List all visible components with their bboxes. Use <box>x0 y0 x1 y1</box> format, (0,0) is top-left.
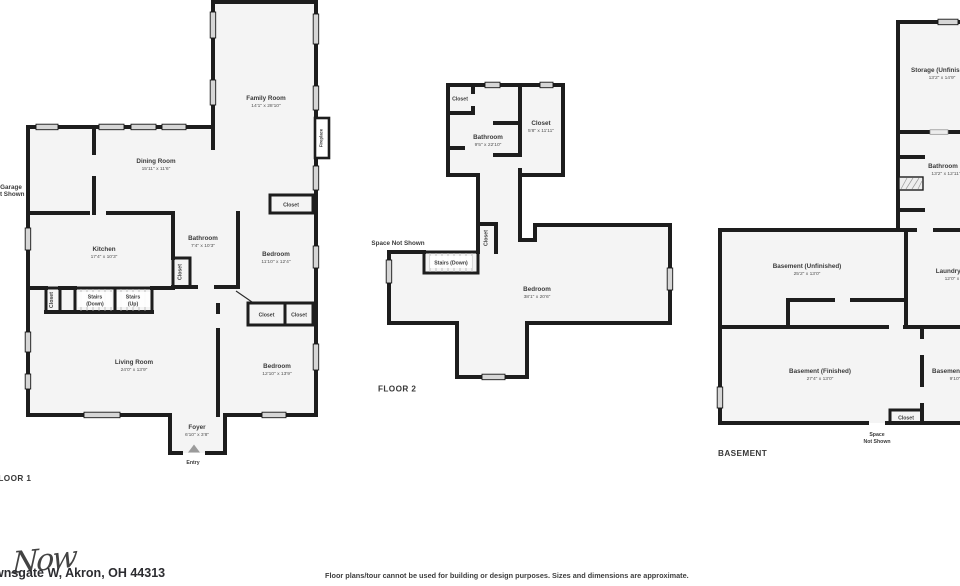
svg-text:24'0" x 13'9": 24'0" x 13'9" <box>121 367 148 373</box>
svg-text:15'11" x 11'6": 15'11" x 11'6" <box>142 166 171 172</box>
svg-text:12'0" x 13'0": 12'0" x 13'0" <box>945 276 960 282</box>
floor1-plan: Stairs (Down) Stairs (Up) Fireplace Fami… <box>0 2 329 483</box>
bathroom1-label: Bathroom <box>188 235 218 242</box>
floorplan-canvas: Stairs (Down) Stairs (Up) Fireplace Fami… <box>0 0 960 586</box>
svg-text:14'1" x 28'10": 14'1" x 28'10" <box>251 103 281 109</box>
bedroom-floor2-label: Bedroom <box>523 286 551 293</box>
bathroom2-label: Bathroom <box>473 134 503 141</box>
basement-top-footprint <box>898 22 960 230</box>
garage-note: Garage <box>0 184 22 191</box>
bedroom2-label: Bedroom <box>263 363 291 370</box>
svg-text:(Down): (Down) <box>86 302 104 308</box>
svg-text:(Up): (Up) <box>128 302 139 308</box>
basement-finished-label: Basement (Finished) <box>789 368 851 375</box>
basement-unfinished-label: Basement (Unfinished) <box>773 263 842 270</box>
svg-text:Not Shown: Not Shown <box>863 439 890 445</box>
svg-text:38'1" x 20'6": 38'1" x 20'6" <box>524 294 551 300</box>
family-room-label: Family Room <box>246 95 286 102</box>
basement-bathroom-label: Bathroom <box>928 163 958 170</box>
kitchen-label: Kitchen <box>92 246 115 253</box>
svg-text:11'10" x 12'4": 11'10" x 12'4" <box>261 259 290 265</box>
basement-title: BASEMENT <box>718 449 767 458</box>
closet-label: Closet <box>49 292 55 308</box>
open-door-marker <box>930 130 948 135</box>
closet-label: Closet <box>259 313 275 319</box>
floor1-title: FLOOR 1 <box>0 474 31 483</box>
stairs-down-label: Stairs (Down) <box>434 261 468 267</box>
floor2-title: FLOOR 2 <box>378 385 416 394</box>
svg-text:6'10" x 3'8": 6'10" x 3'8" <box>185 432 209 438</box>
svg-text:9'5" x 22'10": 9'5" x 22'10" <box>475 142 502 148</box>
closet-label: Closet <box>484 230 490 246</box>
disclaimer-text: Floor plans/tour cannot be used for buil… <box>325 571 689 580</box>
svg-text:7'4" x 10'3": 7'4" x 10'3" <box>191 243 215 249</box>
fireplace-label: Fireplace <box>319 128 324 147</box>
closet-label: Closet <box>178 264 184 280</box>
living-room-label: Living Room <box>115 359 154 366</box>
stairs-down-label: Stairs <box>88 295 103 301</box>
closet-label: Closet <box>452 97 468 103</box>
svg-text:25'2" x 13'0": 25'2" x 13'0" <box>794 271 821 277</box>
svg-text:Not Shown: Not Shown <box>0 191 25 198</box>
floor2-plan: Stairs (Down) Closet Bathroom 9'5" x 22'… <box>371 82 672 393</box>
space-not-shown-note: Space Not Shown <box>371 240 424 247</box>
svg-text:12'10" x 13'9": 12'10" x 13'9" <box>262 371 292 377</box>
storage-label: Storage (Unfinished) <box>911 67 960 74</box>
stairs-up-label: Stairs <box>126 295 141 301</box>
foyer-label: Foyer <box>188 424 206 431</box>
basement-plan: Storage (Unfinished) 13'2" x 14'9" Bathr… <box>717 19 960 458</box>
closet-label: Closet <box>898 416 914 422</box>
basement-small-label: Basement (Finished) <box>932 368 960 375</box>
hatched-fixture <box>899 177 923 190</box>
svg-text:13'2" x 14'9": 13'2" x 14'9" <box>929 75 956 81</box>
laundry-room-label: Laundry Room <box>936 268 960 275</box>
svg-text:9'10" x 12'0": 9'10" x 12'0" <box>950 376 960 382</box>
svg-text:13'2" x 12'11": 13'2" x 12'11" <box>931 171 960 177</box>
closet-room-label: Closet <box>531 120 551 127</box>
closet-label: Closet <box>283 203 299 209</box>
space-not-shown-note: Space <box>869 432 884 438</box>
svg-text:17'4" x 10'3": 17'4" x 10'3" <box>91 254 118 260</box>
closet-label: Closet <box>291 313 307 319</box>
svg-text:27'4" x 13'0": 27'4" x 13'0" <box>807 376 834 382</box>
bedroom1-label: Bedroom <box>262 251 290 258</box>
floorplan-page: Stairs (Down) Stairs (Up) Fireplace Fami… <box>0 0 960 586</box>
address-text: wnsgate W, Akron, OH 44313 <box>0 566 165 580</box>
svg-text:5'8" x 11'11": 5'8" x 11'11" <box>528 128 554 134</box>
floor2-bedroom-footprint <box>389 225 670 377</box>
fireplace: Fireplace <box>315 118 329 158</box>
dining-room-label: Dining Room <box>136 158 176 165</box>
entry-label: Entry <box>186 460 199 466</box>
